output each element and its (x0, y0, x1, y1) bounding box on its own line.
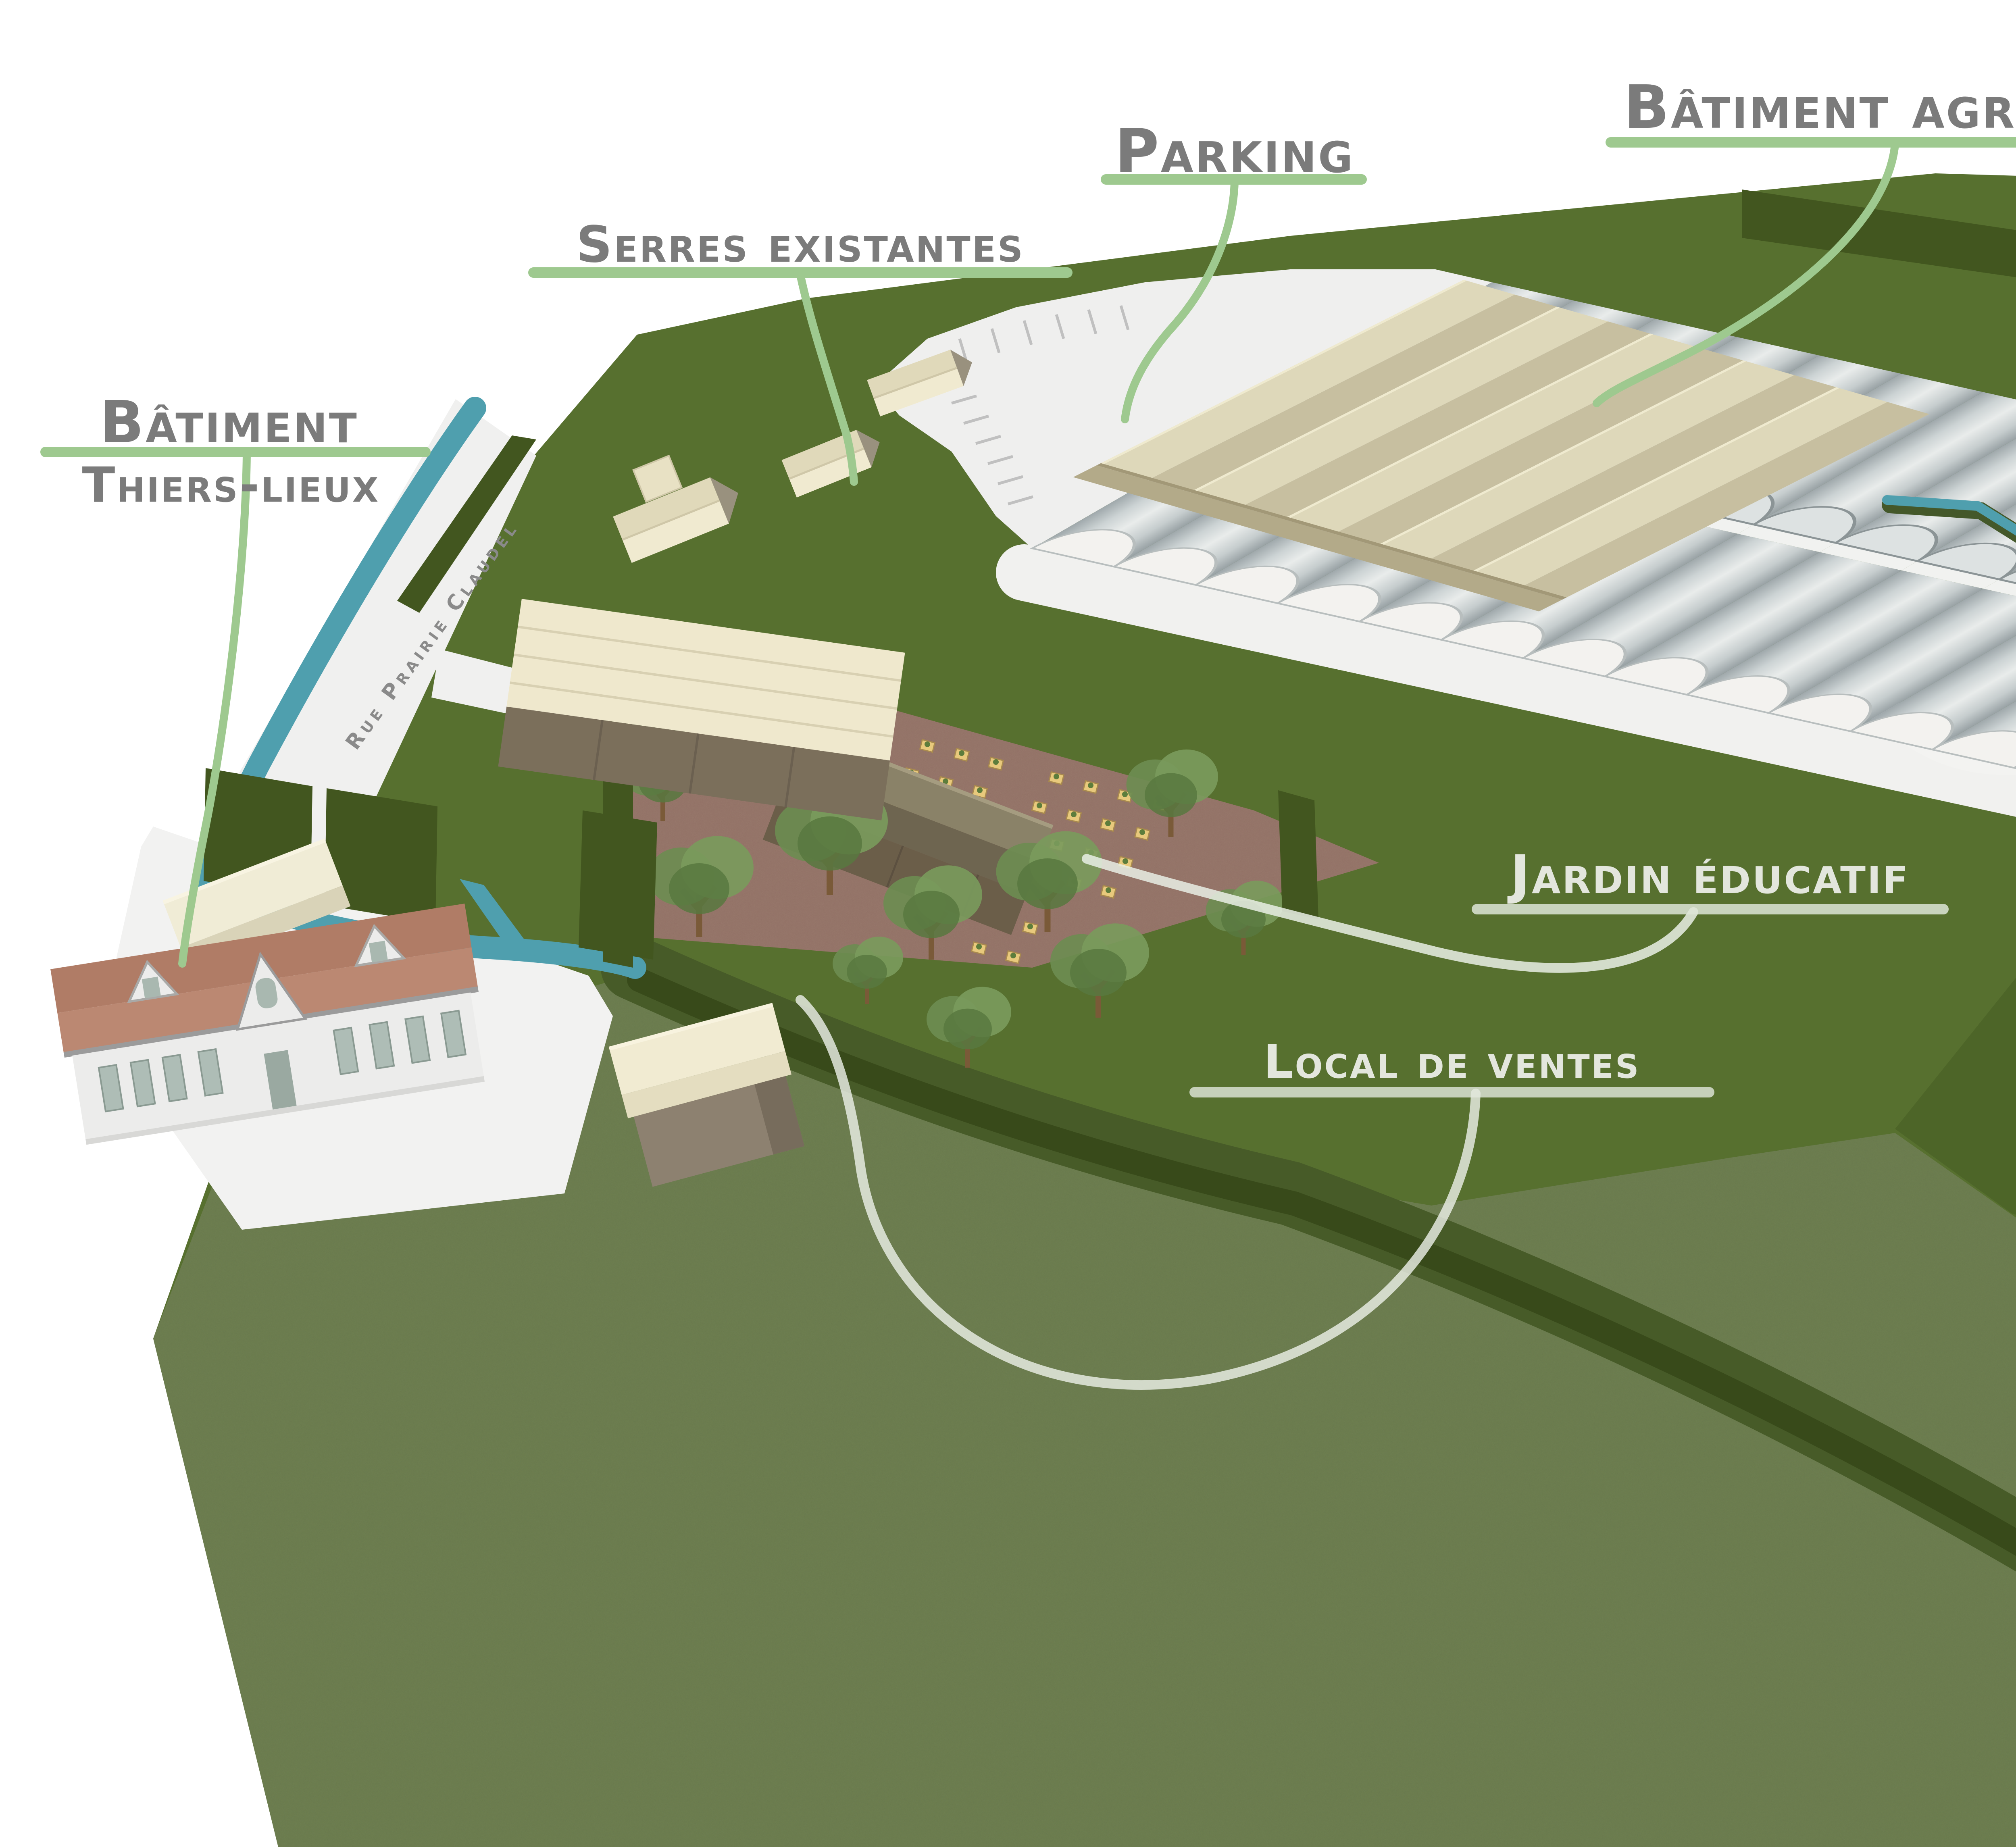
label-batiment-thiers-line2: Thiers-lieux (82, 458, 380, 514)
label-serres-existantes: Serres existantes (576, 216, 1025, 274)
label-batiment-agricole: Bâtiment agricole (1624, 73, 2016, 142)
site-plan-screenshot: Parking Bâtiment agricole Serres Serres … (0, 0, 2016, 1847)
site-plan-rendering (0, 0, 2016, 1847)
label-local-de-ventes: Local de ventes (1264, 1035, 1641, 1089)
label-parking: Parking (1115, 117, 1355, 187)
label-batiment-thiers-line1: Bâtiment (100, 388, 358, 456)
label-jardin-educatif: Jardin éducatif (1510, 844, 1910, 906)
